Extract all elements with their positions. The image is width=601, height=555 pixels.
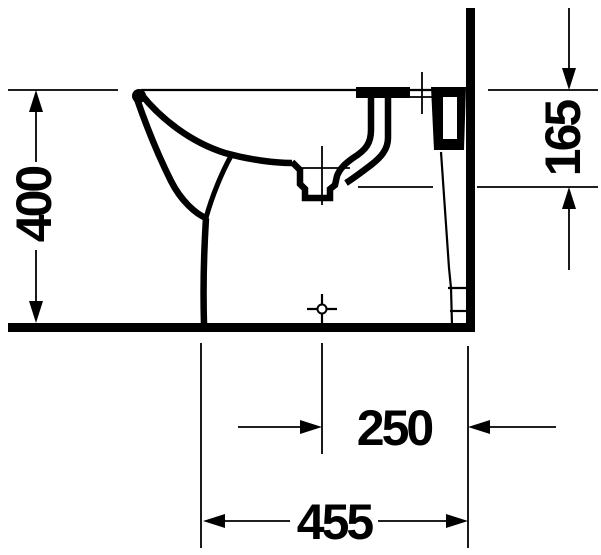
dimension-label-drain-to-wall: 250: [357, 400, 433, 456]
rear-deck-section: [356, 87, 410, 98]
floor-line: [8, 323, 475, 332]
bidet-elevation-drawing: 400 165 250: [0, 0, 601, 555]
dimension-label-height: 400: [6, 167, 62, 243]
dimension-label-depth: 455: [297, 494, 374, 550]
dimension-label-rim-to-inlet: 165: [535, 100, 591, 177]
rear-body-cavity: [443, 97, 457, 139]
fixing-circle: [318, 305, 327, 314]
front-leg: [204, 218, 206, 324]
wall-line: [466, 8, 475, 332]
technical-drawing: 400 165 250: [0, 0, 601, 555]
